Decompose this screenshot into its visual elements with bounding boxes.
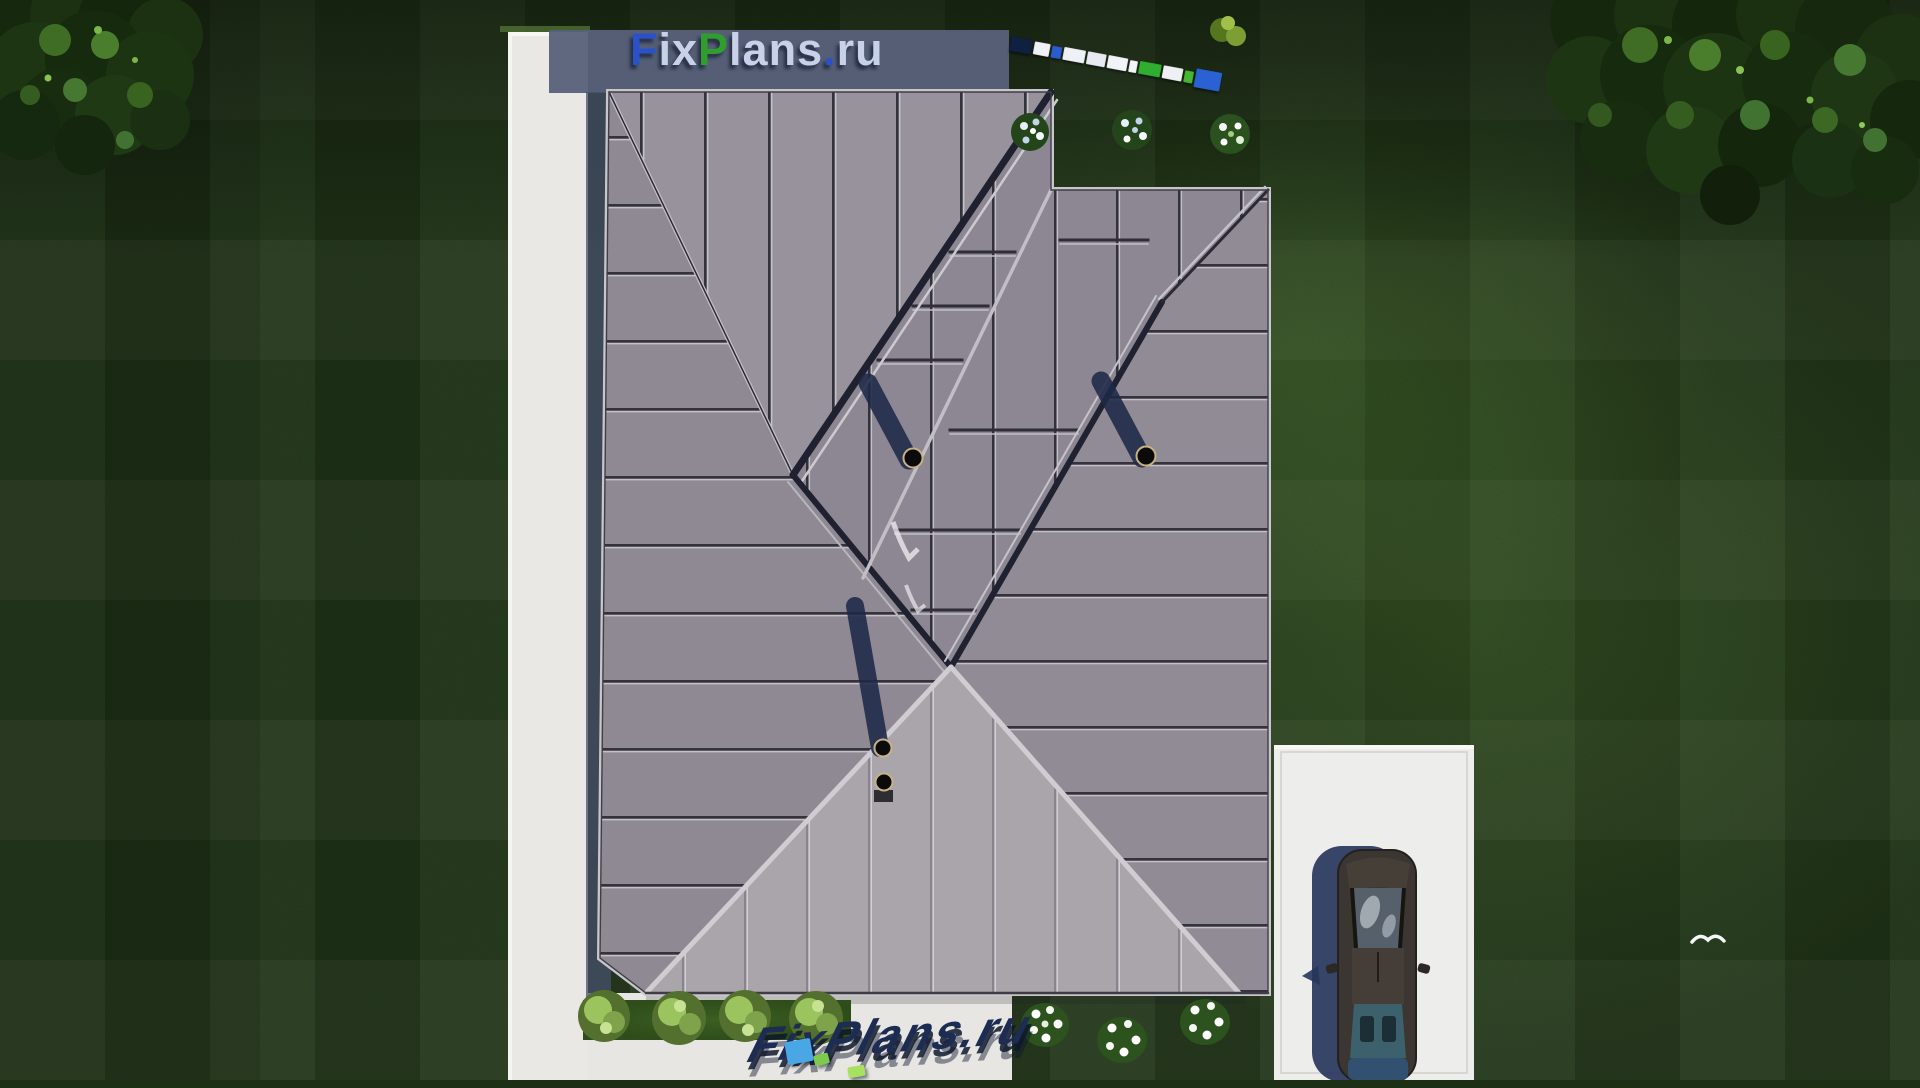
- ground-watermark-blue-accent: [784, 1038, 814, 1065]
- vent-pipe: [875, 740, 892, 757]
- car-trunk: [1348, 1058, 1408, 1080]
- ground-watermark: FixPlans.ru: [752, 1018, 1072, 1088]
- car-rear-glass: [1350, 1004, 1406, 1058]
- car-windshield: [1352, 888, 1404, 948]
- car-hood: [1346, 858, 1410, 893]
- parked-car: [1302, 846, 1431, 1080]
- walkway-left: [500, 26, 590, 1080]
- aerial-render: [0, 0, 1920, 1080]
- ground-watermark-green-accent: [847, 1065, 866, 1079]
- vent-pipe: [904, 449, 923, 468]
- vent-pipe: [1137, 447, 1156, 466]
- site-watermark: FixPlans.ru: [630, 24, 884, 76]
- hip-roof: [600, 92, 1268, 993]
- vent-pipe: [876, 774, 893, 791]
